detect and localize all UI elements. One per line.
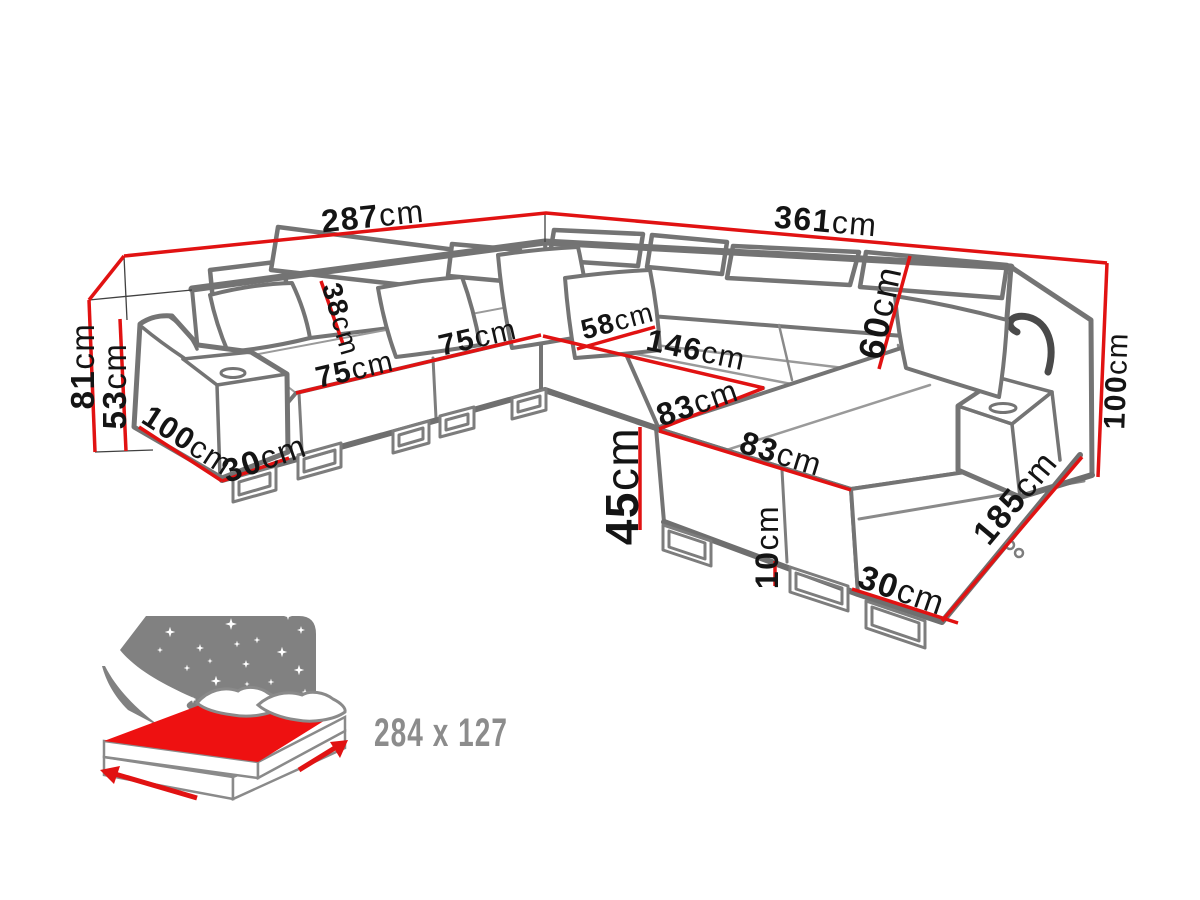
svg-text:100cm: 100cm bbox=[1098, 331, 1134, 430]
svg-text:284 x 127: 284 x 127 bbox=[374, 711, 508, 755]
svg-text:45cm: 45cm bbox=[596, 427, 648, 546]
svg-text:53cm: 53cm bbox=[96, 343, 133, 430]
svg-text:10cm: 10cm bbox=[749, 505, 785, 589]
